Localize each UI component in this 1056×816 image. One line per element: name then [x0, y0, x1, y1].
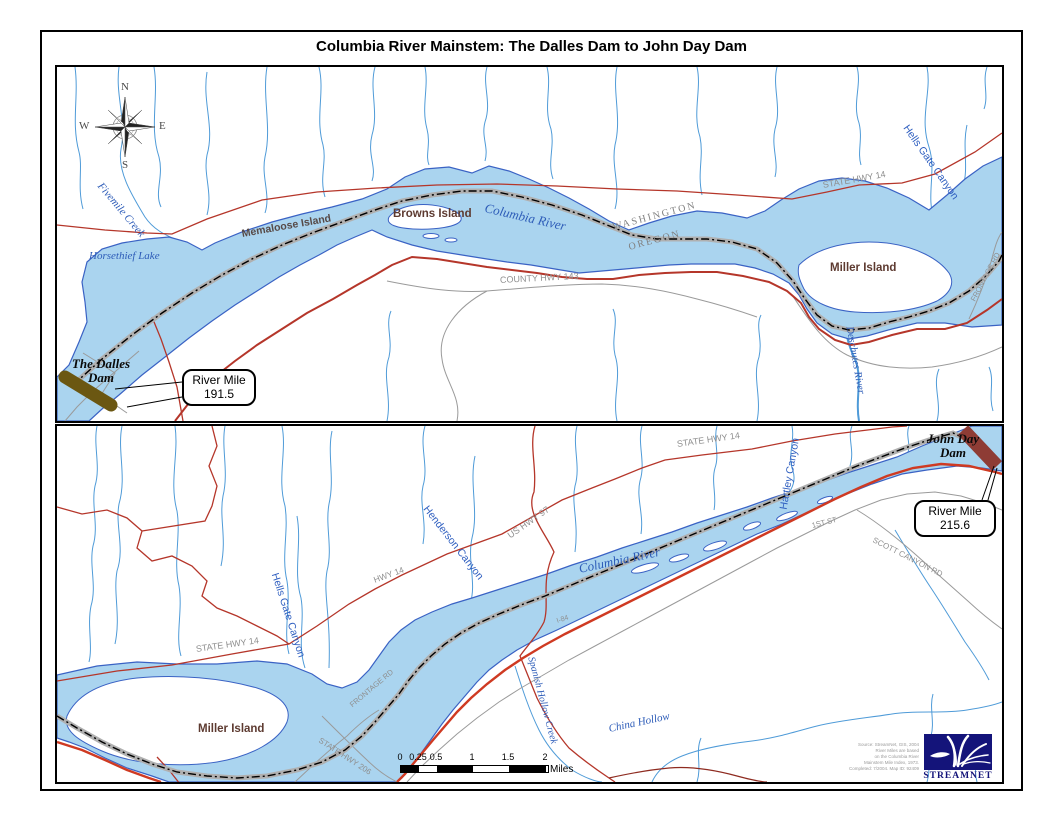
map-attribution: Source: StreamNet, GIS, 2004 River Miles…	[799, 742, 919, 772]
compass-east-label: E	[159, 120, 166, 132]
map-panel-top: N E S W Fivemile Creek Horsethief Lake M…	[55, 65, 1004, 423]
compass-north-label: N	[121, 81, 129, 93]
the-dalles-dam-label-line2: Dam	[57, 371, 145, 385]
streamnet-logo-art	[924, 734, 992, 770]
river-mile-callout-215-value: 215.6	[922, 518, 988, 532]
browns-island-label: Browns Island	[393, 208, 472, 220]
the-dalles-dam-label: The Dalles Dam	[57, 357, 145, 386]
streamnet-logo-text: STREAMNET	[918, 771, 998, 781]
scale-tick-0: 0	[397, 752, 402, 762]
horsethief-lake-label: Horsethief Lake	[89, 251, 160, 263]
the-dalles-dam-label-line1: The Dalles	[57, 357, 145, 371]
compass-rose	[95, 97, 155, 157]
map-title: Columbia River Mainstem: The Dalles Dam …	[40, 38, 1023, 55]
river-mile-callout-215: River Mile 215.6	[914, 500, 996, 537]
china-hollow-road	[609, 767, 767, 782]
compass-west-label: W	[79, 120, 89, 132]
scale-tick-1: 1	[469, 752, 474, 762]
river-mile-callout-191: River Mile 191.5	[182, 369, 256, 406]
scale-tick-2: 2	[542, 752, 547, 762]
john-day-dam-label-line2: Dam	[909, 446, 997, 460]
streamnet-logo	[924, 734, 992, 770]
john-day-dam-label-line1: John Day	[909, 432, 997, 446]
scale-bar: 0 0.25 0.5 1 1.5 2 Miles	[395, 752, 580, 778]
scale-tick-025: 0.25	[409, 752, 427, 762]
map-panel-bottom: STATE HWY 14 Henderson Canyon Hartley Ca…	[55, 424, 1004, 784]
scale-tick-15: 1.5	[502, 752, 515, 762]
scale-bar-segments	[400, 765, 549, 773]
river-mile-callout-191-value: 191.5	[190, 387, 248, 401]
john-day-dam-label: John Day Dam	[909, 432, 997, 461]
river-mile-callout-215-text: River Mile	[922, 504, 988, 518]
miller-island-label-top: Miller Island	[830, 262, 896, 274]
scale-tick-05: 0.5	[430, 752, 443, 762]
miller-island-label-bottom: Miller Island	[198, 723, 264, 735]
compass-south-label: S	[122, 159, 128, 171]
river-mile-callout-191-text: River Mile	[190, 373, 248, 387]
scale-bar-unit: Miles	[550, 764, 573, 775]
map-page: Columbia River Mainstem: The Dalles Dam …	[0, 0, 1056, 816]
attribution-line5: Completed: 7/2004. Map ID: 92409	[799, 766, 919, 772]
